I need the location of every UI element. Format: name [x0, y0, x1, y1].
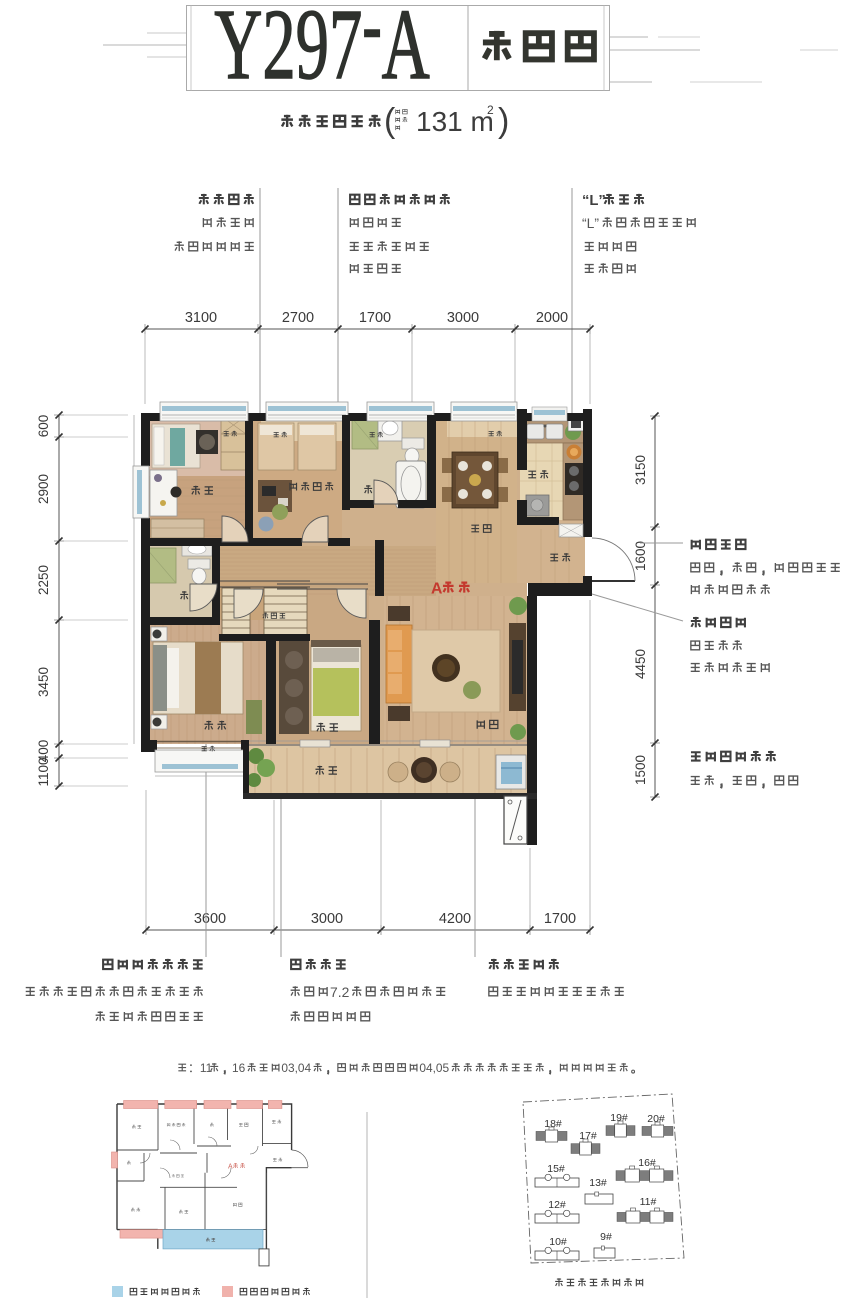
svg-text:2700: 2700 — [282, 310, 314, 326]
svg-text:1600: 1600 — [633, 541, 648, 571]
svg-text:3450: 3450 — [36, 667, 51, 697]
svg-text:03,04: 03,04 — [281, 1061, 311, 1075]
svg-text:15#: 15# — [547, 1163, 565, 1175]
svg-text:2900: 2900 — [36, 474, 51, 504]
svg-text:): ) — [498, 102, 509, 140]
svg-text:1500: 1500 — [633, 755, 648, 785]
svg-text:“L”: “L” — [582, 215, 599, 231]
svg-text:1100: 1100 — [36, 757, 51, 786]
svg-text:3600: 3600 — [194, 911, 226, 927]
svg-text:600: 600 — [36, 415, 51, 438]
svg-text:16#: 16# — [638, 1157, 656, 1169]
svg-text:1700: 1700 — [544, 911, 576, 927]
svg-text:10#: 10# — [549, 1236, 567, 1248]
svg-text:Y297-A: Y297-A — [214, 0, 430, 100]
svg-text:(: ( — [384, 102, 396, 140]
svg-text:“L”: “L” — [582, 193, 606, 209]
svg-text:7.2: 7.2 — [330, 984, 350, 1000]
svg-text:9#: 9# — [600, 1231, 612, 1243]
svg-text:04,05: 04,05 — [419, 1061, 449, 1075]
svg-text:4450: 4450 — [633, 649, 648, 679]
svg-text:131 m: 131 m — [416, 106, 494, 137]
svg-text:2000: 2000 — [536, 310, 568, 326]
svg-text:：11: ：11 — [188, 1061, 213, 1075]
svg-text:3150: 3150 — [633, 455, 648, 485]
svg-text:A: A — [431, 580, 442, 597]
svg-text:13#: 13# — [589, 1177, 607, 1189]
svg-text:2250: 2250 — [36, 565, 51, 595]
svg-text:1700: 1700 — [359, 310, 391, 326]
svg-text:3000: 3000 — [311, 911, 343, 927]
svg-text:3000: 3000 — [447, 310, 479, 326]
svg-text:4200: 4200 — [439, 911, 471, 927]
svg-text:12#: 12# — [548, 1199, 566, 1211]
svg-text:3100: 3100 — [185, 310, 217, 326]
svg-text:11#: 11# — [640, 1196, 657, 1208]
svg-text:16: 16 — [232, 1061, 246, 1075]
svg-text:A: A — [228, 1163, 233, 1170]
svg-text:2: 2 — [487, 103, 494, 117]
